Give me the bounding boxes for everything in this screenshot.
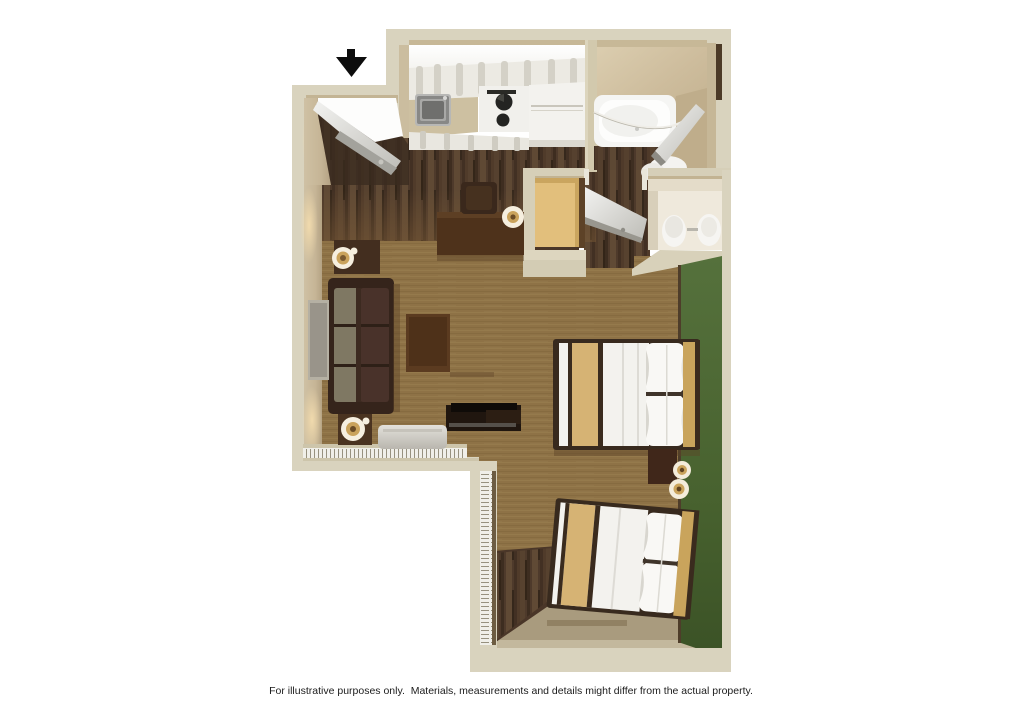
svg-text:For illustrative purposes only: For illustrative purposes only. Material…	[269, 685, 753, 697]
